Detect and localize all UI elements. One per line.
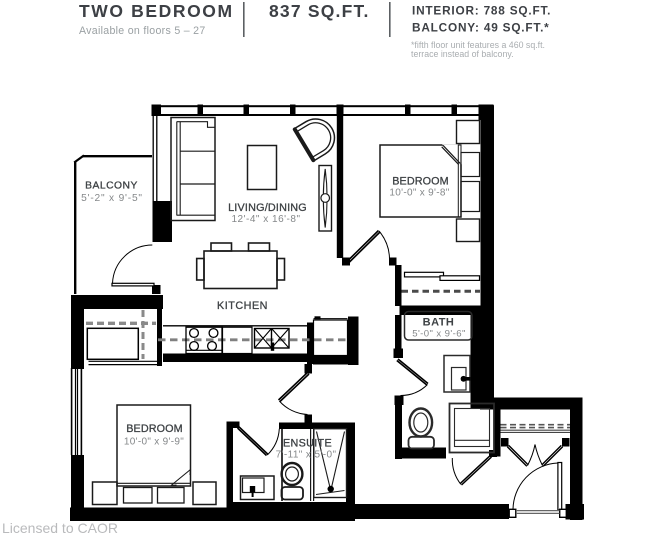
svg-text:12'-4" x 16'-8": 12'-4" x 16'-8" [231,214,300,225]
svg-text:INTERIOR: 788 SQ.FT.: INTERIOR: 788 SQ.FT. [412,4,551,18]
svg-text:5'-2" x 9'-5": 5'-2" x 9'-5" [81,193,143,204]
svg-text:Available on floors 5 – 27: Available on floors 5 – 27 [79,25,206,37]
svg-text:Licensed to CAOR: Licensed to CAOR [2,520,118,536]
svg-text:10'-0" x 9'-9": 10'-0" x 9'-9" [124,437,184,448]
svg-text:BATH: BATH [423,317,455,329]
svg-text:5'-0" x 9'-6": 5'-0" x 9'-6" [412,329,466,340]
svg-text:terrace instead of balcony.: terrace instead of balcony. [411,49,514,59]
svg-text:TWO BEDROOM: TWO BEDROOM [79,1,234,21]
svg-text:10'-0" x 9'-8": 10'-0" x 9'-8" [389,188,449,199]
svg-text:BALCONY: BALCONY [85,180,138,191]
svg-text:BEDROOM: BEDROOM [392,176,449,188]
svg-text:BALCONY: 49 SQ.FT.*: BALCONY: 49 SQ.FT.* [412,21,550,35]
svg-text:7'-11" x 5'-0": 7'-11" x 5'-0" [276,450,337,461]
svg-text:LIVING/DINING: LIVING/DINING [228,202,307,214]
svg-text:ENSUITE: ENSUITE [283,438,332,450]
svg-text:BEDROOM: BEDROOM [126,423,183,435]
svg-text:837 SQ.FT.: 837 SQ.FT. [269,1,370,21]
svg-text:KITCHEN: KITCHEN [217,300,268,312]
